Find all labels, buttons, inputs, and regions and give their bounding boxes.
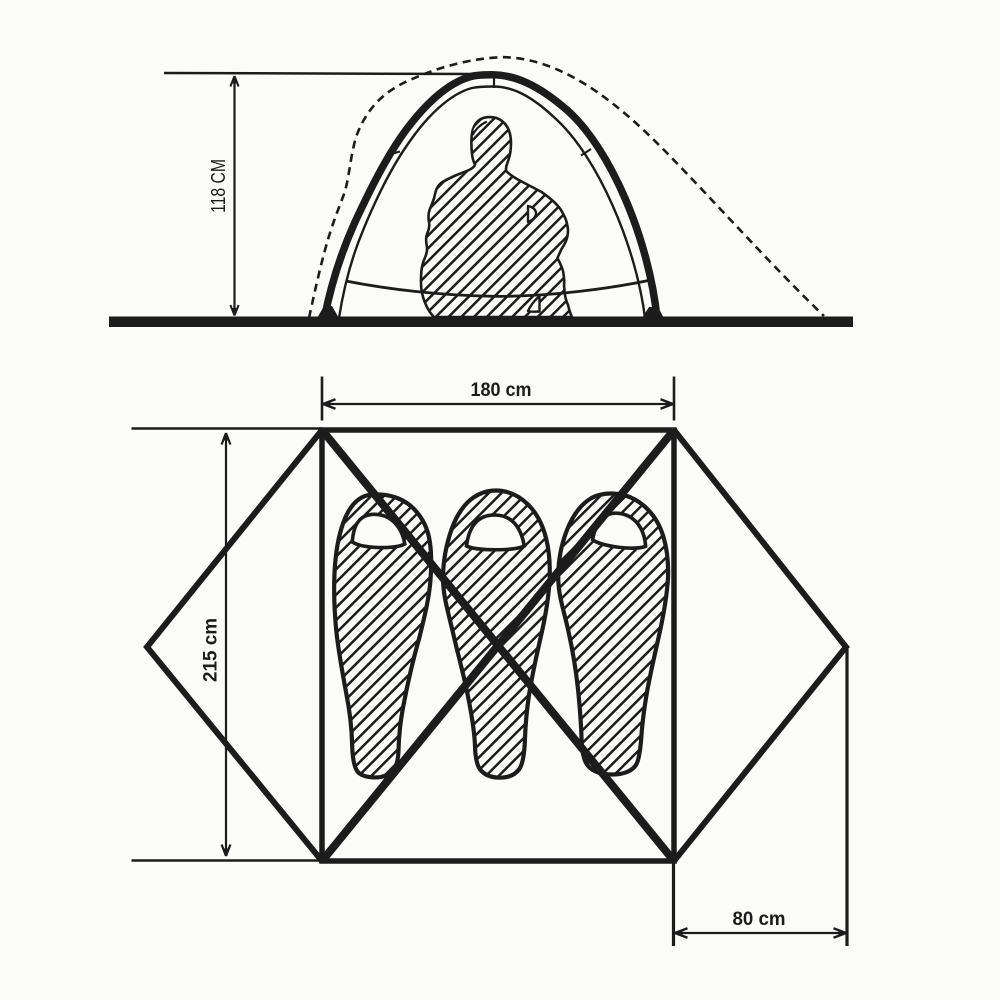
svg-text:118 CM: 118 CM bbox=[207, 159, 230, 213]
svg-text:80 cm: 80 cm bbox=[733, 909, 786, 930]
svg-text:215 cm: 215 cm bbox=[201, 618, 222, 682]
svg-text:180 cm: 180 cm bbox=[471, 380, 532, 401]
